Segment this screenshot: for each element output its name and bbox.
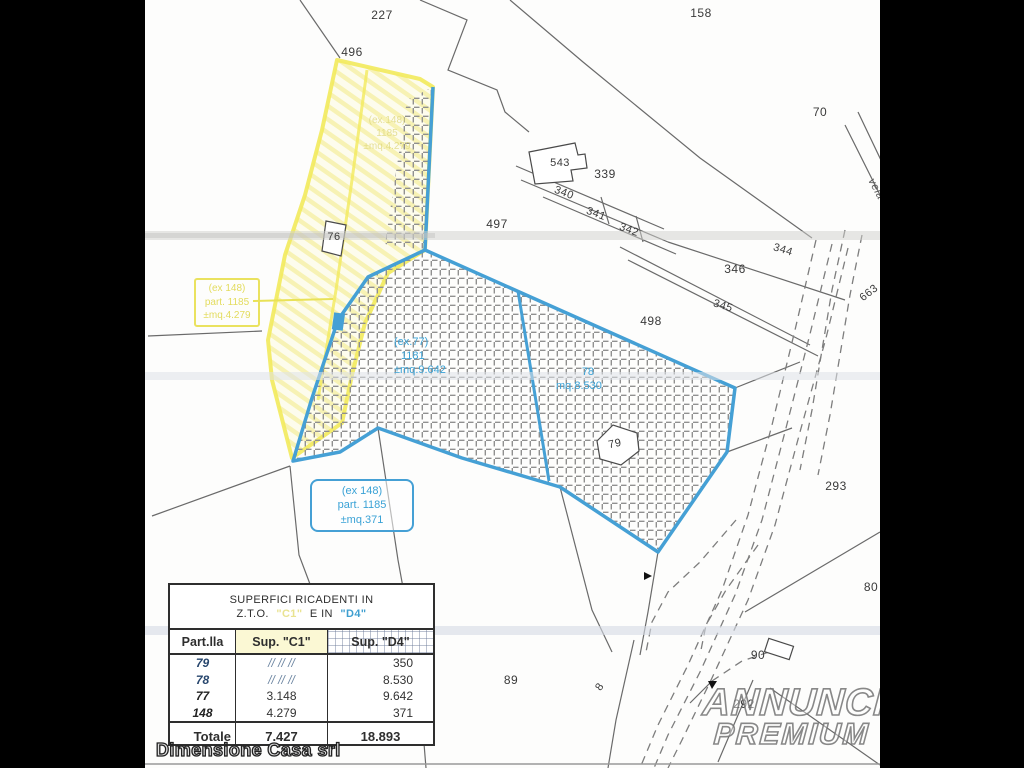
surfaces-table: SUPERFICI RICADENTI IN Z.T.O. "C1" E IN …: [168, 583, 435, 746]
row-part-number: 148: [170, 705, 235, 722]
parcel-label-497: 497: [486, 217, 508, 231]
parcel-label-70: 70: [813, 105, 827, 119]
cadastral-map-drawing: [0, 0, 1024, 768]
row-part-number: 79: [170, 655, 235, 672]
row-sup-c1: 3.148: [235, 688, 327, 705]
row-sup-c1: // // //: [235, 672, 327, 689]
annotation-ex148-faint: (ex.148) 1185 ±mq.4.279: [352, 114, 422, 153]
row-sup-c1: 4.279: [235, 705, 327, 722]
surfaces-table-title: SUPERFICI RICADENTI IN Z.T.O. "C1" E IN …: [170, 585, 433, 630]
left-black-bar: [0, 0, 145, 768]
parcel-label-339: 339: [594, 167, 616, 181]
table-header-row: Part.lla Sup. "C1" Sup. "D4": [170, 630, 433, 655]
annotation-ex148-faint-line1: (ex.148): [352, 114, 422, 127]
watermark-line2: PREMIUM: [696, 721, 888, 749]
annotation-ex77-line2: 1181: [394, 350, 446, 364]
row-sup-d4: 9.642: [327, 688, 433, 705]
cadastral-map-page: 227 496 158 70 497 543 339 340 341 342 3…: [0, 0, 1024, 768]
table-title-ein: E IN: [310, 608, 333, 620]
annotation-ex148-faint-line3: ±mq.4.279: [352, 140, 422, 153]
row-part-number: 78: [170, 672, 235, 689]
building-label-76: 76: [327, 231, 340, 243]
annotation-ex77-line1: (ex.77): [394, 336, 446, 350]
annotation-ex77: (ex.77) 1181 ±mq.9.642: [394, 336, 446, 377]
row-sup-d4: 371: [327, 705, 433, 722]
total-sup-d4: 18.893: [327, 723, 433, 749]
table-row: 79 // // // 350: [170, 655, 433, 672]
parcel-label-158: 158: [690, 6, 712, 20]
table-row: 77 3.148 9.642: [170, 688, 433, 705]
parcel-label-498: 498: [640, 314, 662, 328]
row-part-number: 77: [170, 688, 235, 705]
row-sup-d4: 350: [327, 655, 433, 672]
parcel-label-496: 496: [341, 45, 363, 59]
blue-notch: [332, 312, 345, 330]
annotation-78-line1: 78: [556, 366, 602, 380]
annotation-ex148-blue-line2: part. 1185: [316, 498, 408, 512]
company-name: Dimensione Casa srl: [156, 740, 341, 761]
row-sup-d4: 8.530: [327, 672, 433, 689]
table-row: 78 // // // 8.530: [170, 672, 433, 689]
annotation-ex148-blue-line3: ±mq.371: [316, 513, 408, 527]
annotation-78-line2: mq.8.530: [556, 380, 602, 394]
table-title-zto: Z.T.O.: [237, 608, 269, 620]
watermark-line1: ANNUNCI: [698, 686, 890, 721]
annotation-78: 78 mq.8.530: [556, 366, 602, 394]
right-black-bar: [880, 0, 1024, 768]
annotation-ex148-blue-box: (ex 148) part. 1185 ±mq.371: [310, 479, 414, 532]
row-sup-c1: // // //: [235, 655, 327, 672]
table-title-c1: "C1": [276, 608, 302, 620]
table-header-sup-d4: Sup. "D4": [327, 630, 433, 653]
table-body: 79 // // // 350 78 // // // 8.530 77 3.1…: [170, 655, 433, 721]
annotation-ex148-blue-line1: (ex 148): [316, 484, 408, 498]
parcel-label-543: 543: [550, 157, 570, 169]
table-header-sup-c1: Sup. "C1": [235, 630, 327, 653]
parcel-label-346: 346: [724, 262, 746, 276]
parcel-label-293: 293: [825, 479, 847, 493]
table-title-d4: "D4": [340, 608, 366, 620]
watermark: ANNUNCI PREMIUM: [696, 686, 890, 749]
table-title-line2: Z.T.O. "C1" E IN "D4": [235, 608, 369, 620]
parcel-label-227: 227: [371, 8, 393, 22]
annotation-ex148-yellow-line3: ±mq.4.279: [199, 309, 255, 323]
parcel-label-89: 89: [504, 673, 518, 687]
table-header-partlla: Part.lla: [170, 630, 235, 653]
table-row: 148 4.279 371: [170, 705, 433, 722]
annotation-ex148-yellow-line1: (ex 148): [199, 282, 255, 296]
annotation-ex148-faint-line2: 1185: [352, 127, 422, 140]
table-title-line1: SUPERFICI RICADENTI IN: [230, 594, 374, 606]
annotation-ex77-line3: ±mq.9.642: [394, 364, 446, 378]
parcel-label-90: 90: [751, 648, 765, 662]
annotation-ex148-yellow-line2: part. 1185: [199, 296, 255, 310]
annotation-ex148-yellow-box: (ex 148) part. 1185 ±mq.4.279: [194, 278, 260, 327]
parcel-label-80: 80: [864, 580, 878, 594]
